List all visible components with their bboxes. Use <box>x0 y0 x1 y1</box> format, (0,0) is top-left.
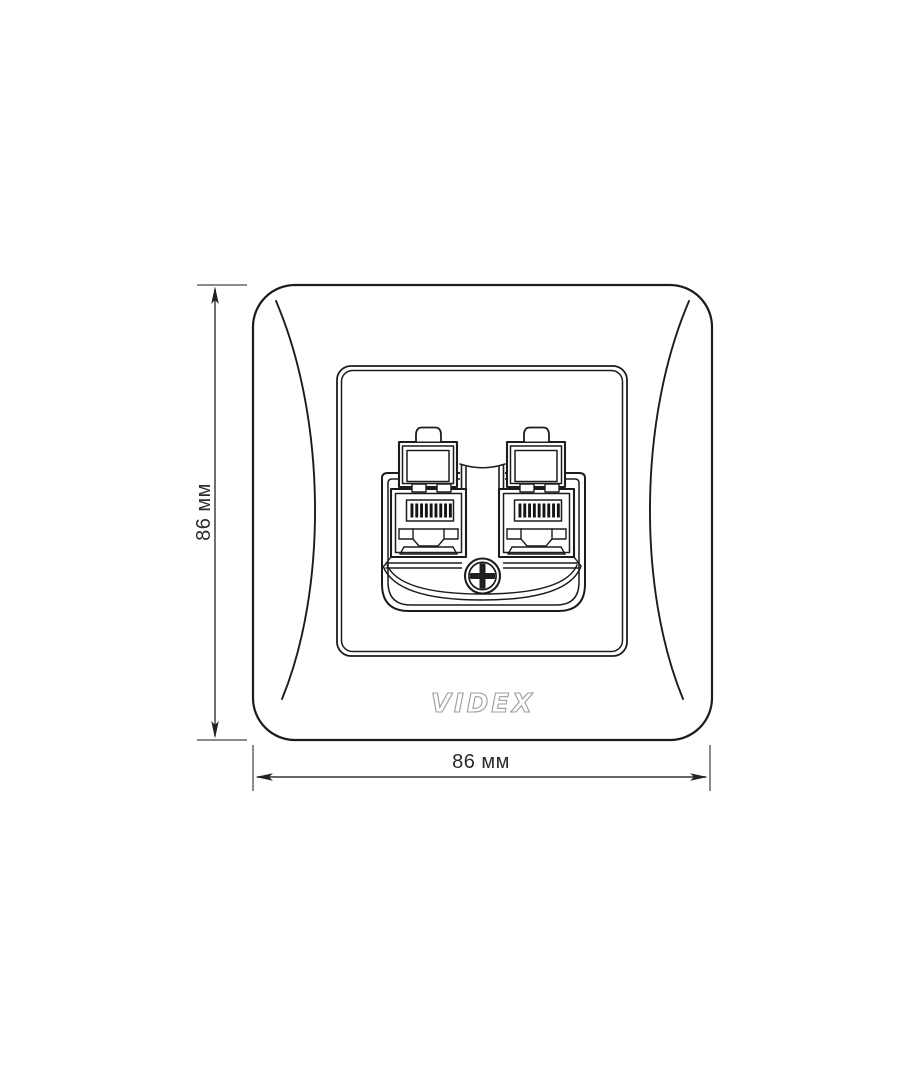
videx-logo: VIDEX <box>431 689 535 719</box>
product-dimension-diagram: VIDEX 86 мм 86 мм <box>0 0 910 1080</box>
rj45-jack-right <box>499 428 574 558</box>
flap-top-bump <box>416 428 441 442</box>
rj45-jack-left <box>391 428 466 558</box>
width-dimension-label: 86 мм <box>452 751 510 773</box>
jack-contact-bars <box>411 504 452 518</box>
height-dimension-label: 86 мм <box>193 483 215 541</box>
flap-hinge-tab <box>412 484 426 492</box>
phillips-screw-icon <box>465 559 500 594</box>
faceplate-drawing-svg: VIDEX 86 мм 86 мм <box>0 0 910 1080</box>
flap-hinge-tab <box>437 484 451 492</box>
height-dimension: 86 мм <box>193 285 247 740</box>
width-dimension: 86 мм <box>253 745 710 791</box>
